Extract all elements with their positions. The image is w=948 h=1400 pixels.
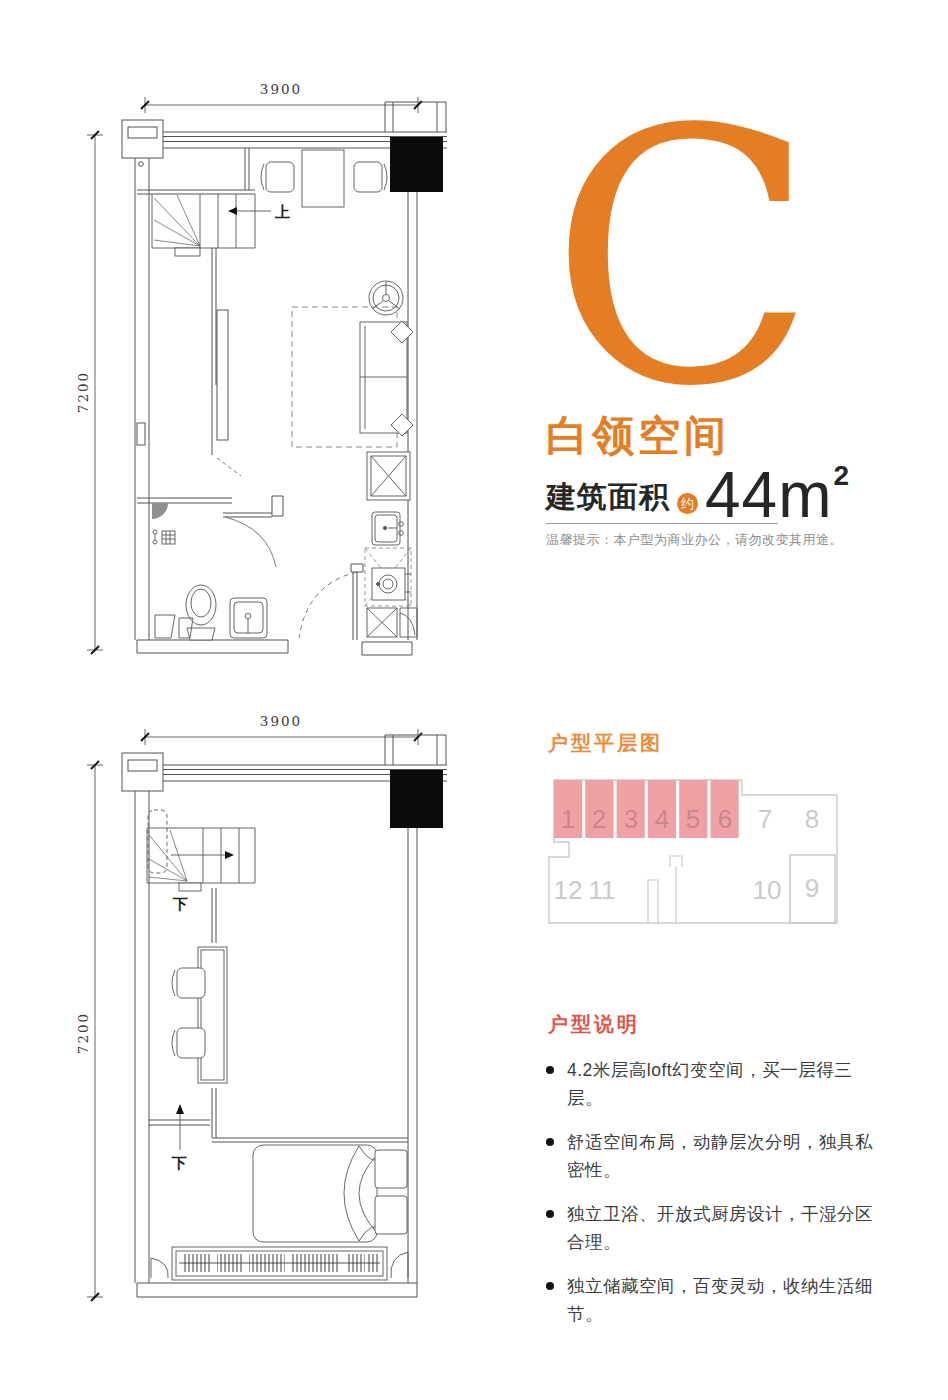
up-arrow	[228, 207, 271, 215]
plate-unit-label: 8	[805, 804, 819, 834]
plate-unit-label: 5	[686, 804, 700, 834]
area-value: 44m2	[705, 468, 849, 522]
plate-unit-numbers: 1 2 3 4 5 6 7 8 9 10 11 12	[554, 804, 820, 905]
lower-stair-label-2: 下	[171, 1154, 187, 1171]
plate-unit-label: 10	[753, 875, 782, 905]
lower-plan-width-dim: 3900	[260, 715, 302, 729]
lower-plan-height-dim: 7200	[75, 1012, 91, 1054]
plate-unit-label: 12	[554, 875, 583, 905]
plate-unit-label: 2	[592, 804, 606, 834]
bullet-text: 4.2米层高loft幻变空间，买一层得三层。	[567, 1056, 883, 1112]
area-unit: m	[778, 459, 832, 531]
kitchen-appliance-box	[367, 452, 410, 500]
list-item: 舒适空间布局，动静层次分明，独具私密性。	[546, 1128, 938, 1184]
bullet-text: 舒适空间布局，动静层次分明，独具私密性。	[567, 1128, 883, 1184]
usage-notice: 温馨提示：本户型为商业办公，请勿改变其用途。	[546, 531, 843, 549]
plate-highlighted-units	[554, 780, 739, 838]
plate-unit-label: 1	[561, 804, 575, 834]
shower-corner	[152, 503, 168, 519]
bullet-text: 独立卫浴、开放式厨房设计，干湿分区合理。	[567, 1200, 883, 1256]
desk-table	[302, 150, 344, 207]
area-number: 44	[705, 459, 778, 531]
bullet-text: 独立储藏空间，百变灵动，收纳生活细节。	[567, 1272, 883, 1328]
chair	[261, 162, 294, 192]
sofa	[360, 321, 413, 436]
upper-floor-plan: 3900 7200	[75, 80, 475, 670]
staircase	[152, 194, 255, 256]
wardrobe	[172, 1247, 387, 1280]
upper-plan-width-dim: 3900	[260, 81, 302, 97]
description-title: 户型说明	[548, 1011, 640, 1038]
staircase	[147, 828, 255, 891]
plate-unit-label: 7	[758, 804, 772, 834]
plate-unit-label: 4	[655, 804, 669, 834]
list-item: 4.2米层高loft幻变空间，买一层得三层。	[546, 1056, 938, 1112]
area-label: 建筑面积	[546, 477, 670, 518]
area-superscript: 2	[834, 460, 851, 491]
approx-badge: 约	[677, 493, 698, 514]
bullet-dot-icon	[546, 1066, 554, 1074]
long-desk	[198, 947, 227, 1083]
upper-stair-label: 上	[274, 203, 290, 220]
corner-braces	[155, 615, 193, 638]
bathroom-sink	[230, 598, 267, 638]
chair	[172, 968, 205, 998]
area-row: 建筑面积 约 44m2	[546, 452, 849, 522]
lower-floor-plan: 3900 7200	[75, 715, 475, 1315]
bullet-dot-icon	[546, 1138, 554, 1146]
ceiling-fan	[369, 281, 403, 315]
floorplan-brochure-page: 3900 7200	[0, 0, 948, 1400]
chair	[354, 162, 387, 192]
shaft-column	[390, 137, 443, 192]
kitchen-lower-box	[367, 608, 417, 637]
shower-valve	[153, 530, 175, 544]
floor-plate-diagram: 1 2 3 4 5 6 7 8 9 10 11 12	[548, 768, 848, 928]
stove	[372, 568, 411, 600]
shaft-column	[390, 770, 443, 828]
floor-plate-title: 户型平层图	[548, 730, 663, 757]
bullet-dot-icon	[546, 1210, 554, 1218]
plate-core	[648, 856, 682, 923]
description-list: 4.2米层高loft幻变空间，买一层得三层。 舒适空间布局，动静层次分明，独具私…	[546, 1056, 938, 1344]
list-item: 独立卫浴、开放式厨房设计，干湿分区合理。	[546, 1200, 938, 1256]
upper-plan-height-dim: 7200	[75, 371, 91, 413]
plate-unit-label: 3	[624, 804, 638, 834]
chair	[172, 1028, 205, 1058]
furniture	[147, 810, 408, 1280]
lower-stair-label-1: 下	[172, 895, 188, 912]
down-arrow	[171, 851, 234, 859]
plate-unit-label: 9	[805, 873, 819, 903]
furniture	[152, 150, 417, 640]
bed	[253, 1145, 407, 1242]
bullet-dot-icon	[546, 1282, 554, 1290]
plate-unit-label: 11	[589, 875, 616, 905]
kitchen-sink	[372, 512, 403, 545]
divider-line	[546, 523, 778, 524]
list-item: 独立储藏空间，百变灵动，收纳生活细节。	[546, 1272, 938, 1328]
plate-unit-label: 6	[718, 804, 732, 834]
down-arrow-2	[176, 1104, 184, 1150]
unit-type-letter: C	[549, 84, 817, 434]
